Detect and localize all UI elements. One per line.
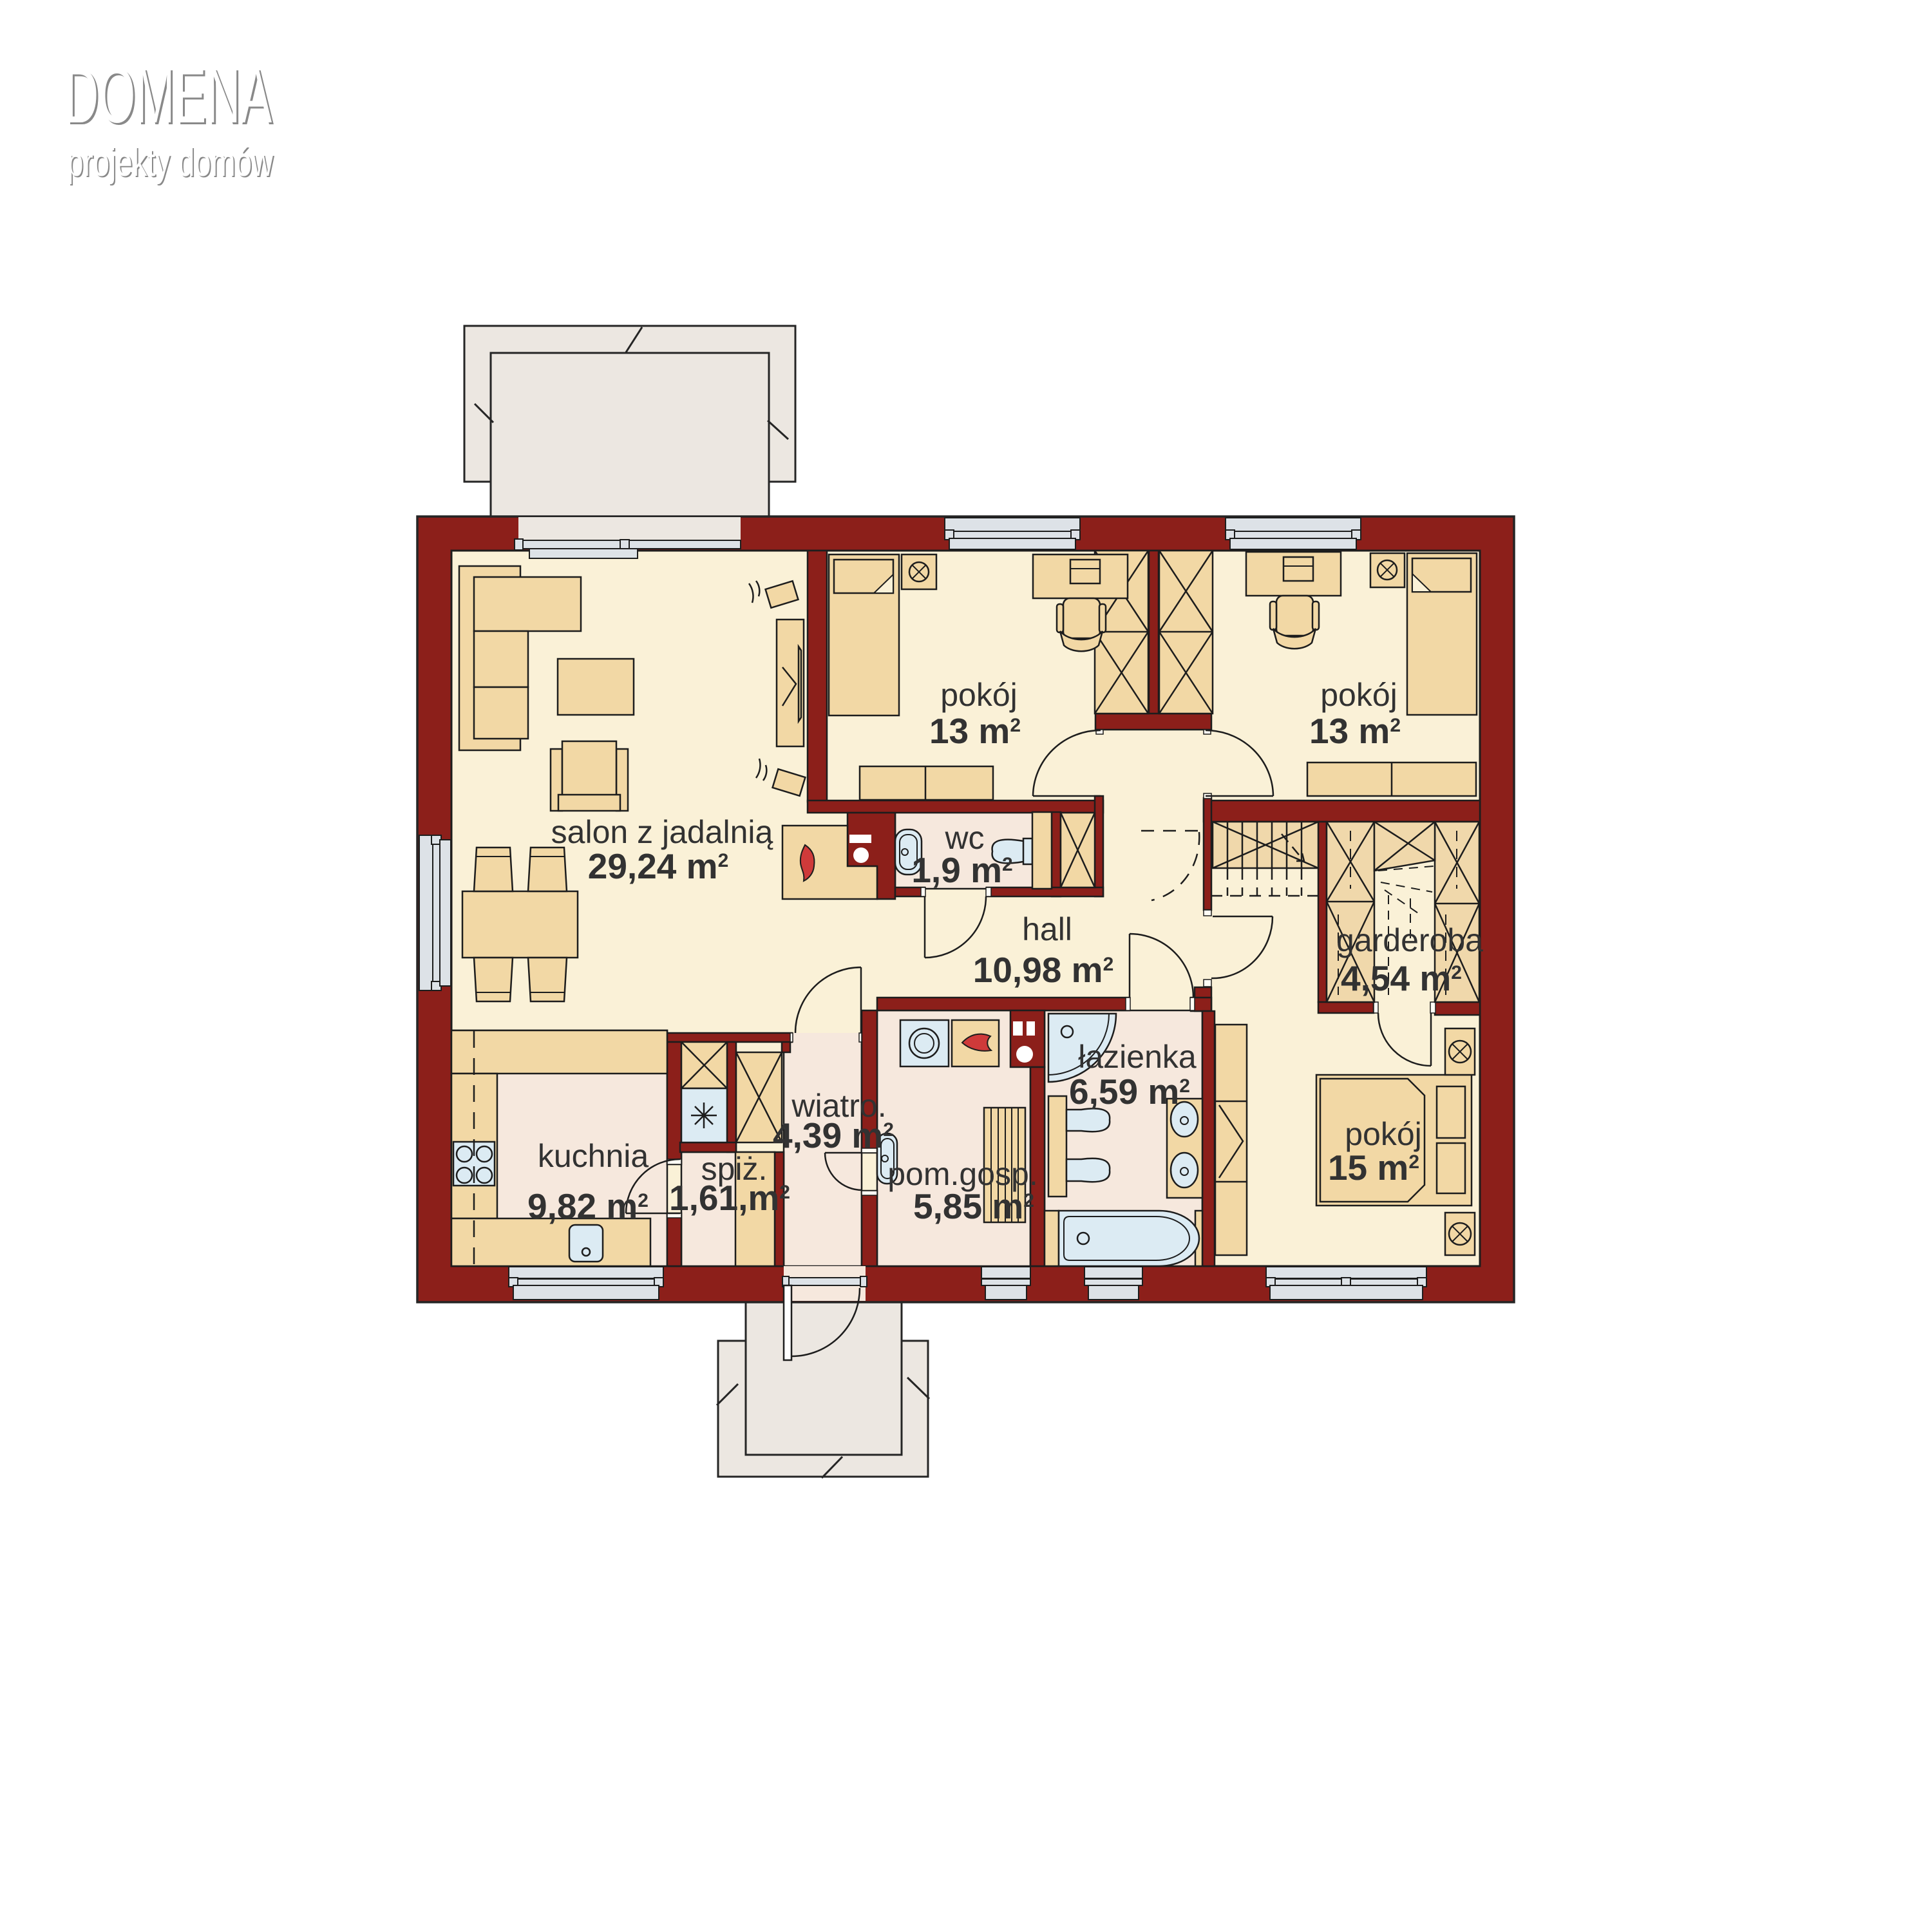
- svg-text:DOMENA: DOMENA: [64, 52, 272, 139]
- svg-text:kuchnia: kuchnia: [538, 1138, 649, 1174]
- svg-text:pokój: pokój: [1320, 677, 1397, 713]
- svg-text:13 m2: 13 m2: [929, 711, 1021, 751]
- svg-text:29,24 m2: 29,24 m2: [588, 846, 729, 886]
- svg-text:9,82 m2: 9,82 m2: [527, 1186, 649, 1226]
- svg-text:6,59 m2: 6,59 m2: [1069, 1072, 1190, 1112]
- svg-text:garderoba: garderoba: [1336, 922, 1483, 958]
- svg-text:salon z jadalnią: salon z jadalnią: [551, 814, 773, 850]
- svg-text:pokój: pokój: [940, 677, 1018, 713]
- svg-text:13 m2: 13 m2: [1309, 711, 1401, 751]
- svg-text:1,9 m2: 1,9 m2: [911, 850, 1012, 890]
- svg-text:5,85 m2: 5,85 m2: [913, 1186, 1034, 1226]
- svg-text:łazienka: łazienka: [1078, 1039, 1197, 1075]
- svg-text:10,98 m2: 10,98 m2: [973, 950, 1114, 990]
- svg-text:hall: hall: [1022, 911, 1072, 947]
- svg-text:4,54 m2: 4,54 m2: [1341, 958, 1462, 998]
- svg-text:1,61,m2: 1,61,m2: [669, 1178, 790, 1218]
- svg-text:4,39 m2: 4,39 m2: [773, 1115, 894, 1155]
- svg-text:pokój: pokój: [1345, 1116, 1422, 1152]
- svg-text:projekty domów: projekty domów: [67, 140, 273, 185]
- svg-text:15 m2: 15 m2: [1328, 1148, 1419, 1188]
